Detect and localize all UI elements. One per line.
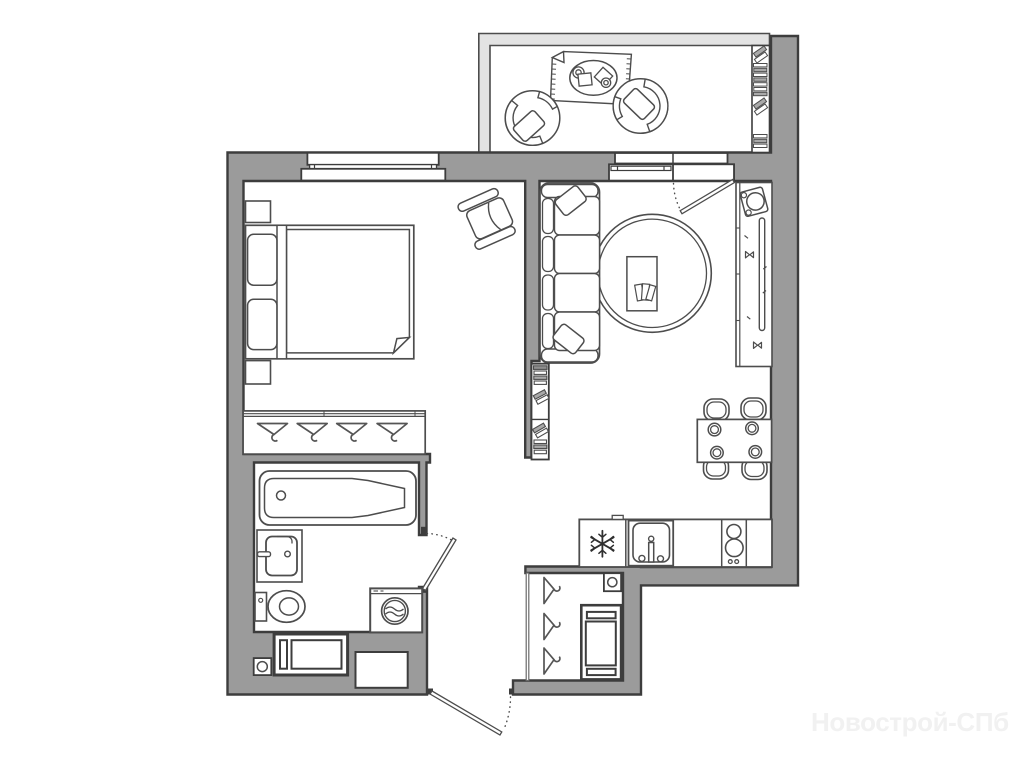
svg-text:Новострой-СПб: Новострой-СПб [811,707,1009,737]
